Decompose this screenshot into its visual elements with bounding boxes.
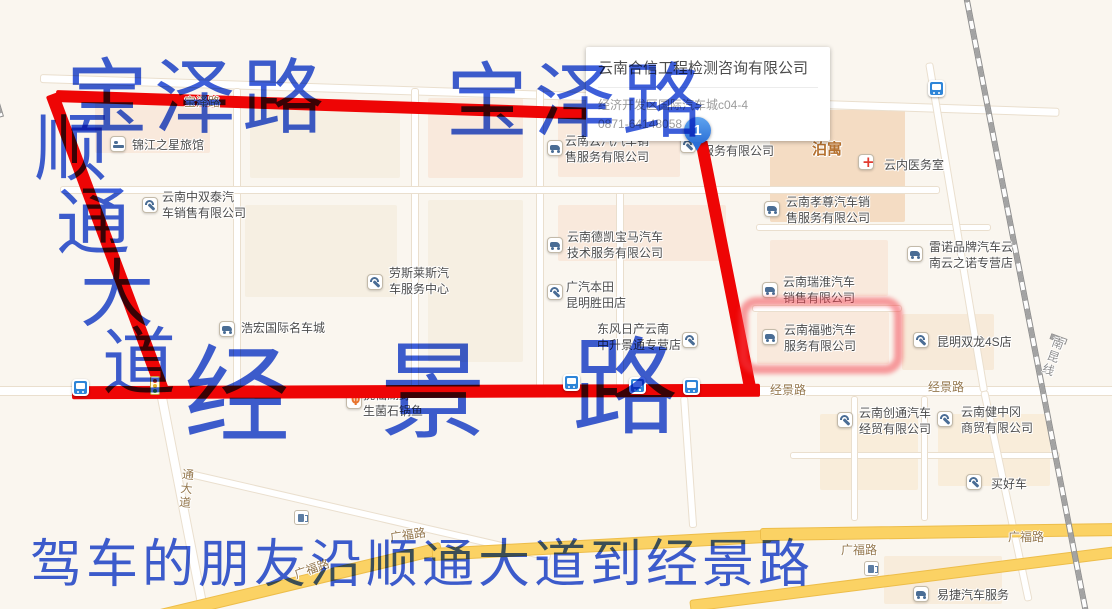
wrench-icon xyxy=(966,474,982,490)
car-icon xyxy=(764,201,780,217)
bus-stop-icon[interactable] xyxy=(928,80,945,97)
road-label-广福路: 广福路 xyxy=(841,543,877,558)
poi-label[interactable]: 雷诺品牌汽车云南云之诺专营店 xyxy=(929,239,1013,271)
poi-label[interactable]: 劳斯莱斯汽车服务中心 xyxy=(389,265,449,297)
car-icon xyxy=(907,246,923,262)
annotation-char-通: 通 xyxy=(56,186,130,260)
annotation-directions: 驾车的朋友沿顺通大道到经景路 左转进入经景路行至云南福驰汽 车左转直行230m左… xyxy=(30,420,814,609)
wrench-icon xyxy=(682,332,698,348)
poi-label[interactable]: 云南孝尊汽车销售服务有限公司 xyxy=(786,194,870,226)
gas-station-icon[interactable] xyxy=(864,561,879,576)
road-label-泊寓: 泊寓 xyxy=(812,142,842,157)
car-icon xyxy=(547,237,563,253)
poi-label[interactable]: 昆明双龙4S店 xyxy=(937,334,1012,350)
road-label-广福路: 广福路 xyxy=(1008,530,1044,545)
directions-line-1: 驾车的朋友沿顺通大道到经景路 xyxy=(30,536,814,594)
annotation-char-道: 道 xyxy=(102,326,176,400)
poi-label[interactable]: 云南德凯宝马汽车技术服务有限公司 xyxy=(567,229,663,261)
wrench-icon xyxy=(142,197,158,213)
annotation-char-顺: 顺 xyxy=(34,112,108,186)
wrench-icon xyxy=(937,411,953,427)
railway-segment xyxy=(0,0,4,118)
poi-label[interactable]: 广汽本田昆明胜田店 xyxy=(566,279,626,311)
car-icon xyxy=(762,282,778,298)
map-canvas[interactable]: 宝泽路经景路经景路广福路广福路广福路广福路泊寓通大道南昆线锦江之星旅馆云南中双泰… xyxy=(0,0,1112,609)
poi-label[interactable]: 云南健中冈商贸有限公司 xyxy=(961,404,1033,436)
poi-label[interactable]: 云南中双泰汽车销售有限公司 xyxy=(162,189,246,221)
poi-label[interactable]: 浩宏国际名车城 xyxy=(241,320,325,336)
poi-label[interactable]: 买好车 xyxy=(991,476,1027,492)
annotation-baoze-right: 宝泽路 xyxy=(446,62,710,144)
car-icon xyxy=(913,586,929,602)
railway-nankun xyxy=(962,0,1092,609)
road-label-经景路: 经景路 xyxy=(770,383,806,398)
destination-highlight-box xyxy=(739,297,903,374)
poi-label[interactable]: 易捷汽车服务 xyxy=(937,587,1009,603)
wrench-icon xyxy=(367,274,383,290)
bus-stop-icon[interactable] xyxy=(683,378,700,395)
road-label-经景路: 经景路 xyxy=(928,380,964,395)
bus-stop-icon[interactable] xyxy=(72,379,89,396)
wrench-icon xyxy=(547,284,563,300)
road-label-南昆线: 南昆线 xyxy=(1049,333,1067,344)
wrench-icon xyxy=(837,412,853,428)
wrench-icon xyxy=(913,332,929,348)
poi-label[interactable]: 云内医务室 xyxy=(884,157,944,173)
poi-label[interactable]: 云南创通汽车经贸有限公司 xyxy=(859,405,931,437)
cross-icon xyxy=(858,154,874,170)
